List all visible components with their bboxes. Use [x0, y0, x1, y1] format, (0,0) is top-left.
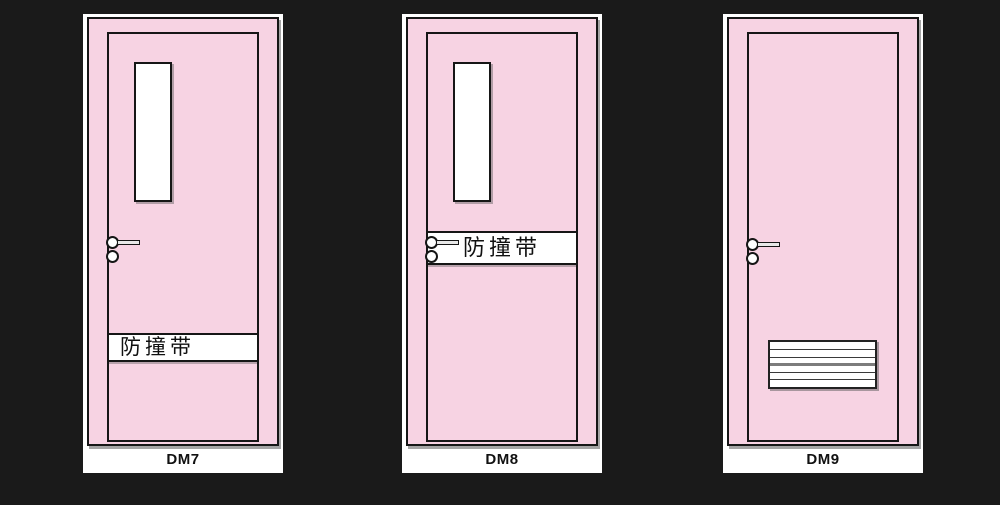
vent-slat-line — [770, 379, 875, 380]
door-handle — [746, 238, 786, 268]
vent-slat-line — [770, 357, 875, 358]
door-leaf: 防撞带 — [107, 32, 259, 442]
lock-rose-icon — [746, 252, 759, 265]
handle-lever-icon — [117, 240, 140, 245]
door-leaf: 防撞带 — [426, 32, 578, 442]
vent-grille — [768, 340, 877, 389]
door-frame: 防撞带 — [406, 17, 598, 446]
door-frame — [727, 17, 919, 446]
lock-rose-icon — [425, 250, 438, 263]
model-label: DM9 — [723, 446, 923, 473]
bumper-band-label: 防撞带 — [120, 335, 195, 359]
door-catalog-canvas: { "colors": { "background": "#1a1a1a", "… — [0, 0, 1000, 505]
vent-slat-line — [770, 372, 875, 373]
door-leaf — [747, 32, 899, 442]
vent-slat-line — [770, 363, 875, 366]
vent-slat-line — [770, 349, 875, 350]
model-label: DM8 — [402, 446, 602, 473]
door-card-dm7: 防撞带 DM7 — [83, 14, 283, 473]
model-label: DM7 — [83, 446, 283, 473]
door-vision-panel — [453, 62, 491, 202]
door-frame: 防撞带 — [87, 17, 279, 446]
door-vision-panel — [134, 62, 172, 202]
door-handle — [106, 236, 146, 266]
handle-lever-icon — [436, 240, 459, 245]
door-handle — [425, 236, 465, 266]
bumper-band: 防撞带 — [109, 333, 257, 362]
lock-rose-icon — [106, 250, 119, 263]
handle-lever-icon — [757, 242, 780, 247]
bumper-band-label: 防撞带 — [463, 235, 541, 260]
door-card-dm8: 防撞带 DM8 — [402, 14, 602, 473]
door-card-dm9: DM9 — [723, 14, 923, 473]
